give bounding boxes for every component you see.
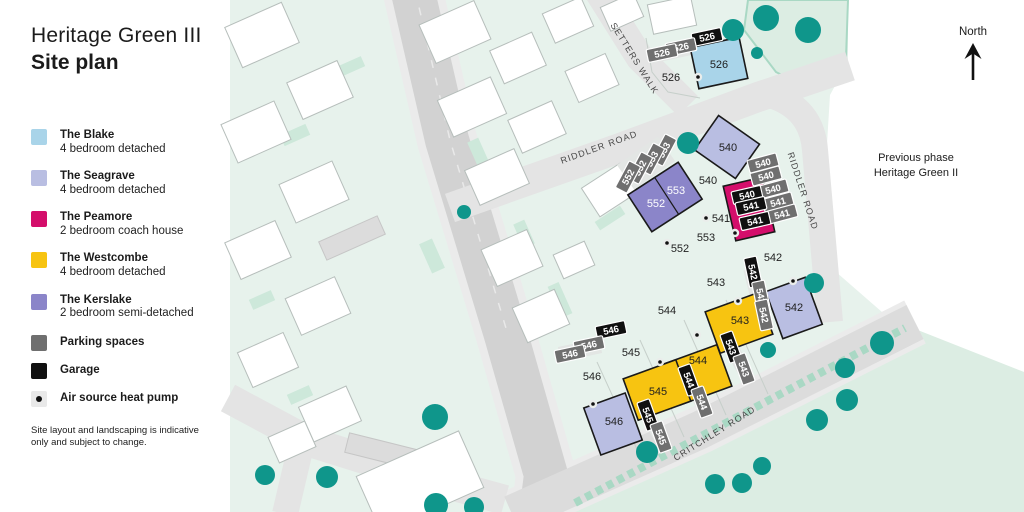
plot-label-543: 543 xyxy=(707,277,725,289)
legend-name: Garage xyxy=(60,364,100,378)
north-arrow-icon xyxy=(959,42,987,82)
heat-pump-marker xyxy=(589,400,597,408)
house-label-546: 546 xyxy=(605,416,623,428)
plot-label-541: 541 xyxy=(712,213,730,225)
plot-label-545: 545 xyxy=(622,347,640,359)
legend-desc: 4 bedroom detached xyxy=(60,143,166,157)
legend-name: The Westcombe xyxy=(60,252,166,266)
parking-color-swatch xyxy=(31,335,47,351)
legend-item-garage: Garage xyxy=(31,363,231,379)
previous-phase-note: Previous phase Heritage Green II xyxy=(836,151,996,181)
plot-label-546: 546 xyxy=(583,371,601,383)
legend-desc: 4 bedroom detached xyxy=(60,266,166,280)
legend-name: Parking spaces xyxy=(60,336,144,350)
tree-icon xyxy=(722,19,744,41)
legend-item-kerslake: The Kerslake 2 bedroom semi-detached xyxy=(31,294,231,321)
heat-pump-marker xyxy=(693,331,701,339)
legend-name: The Blake xyxy=(60,129,166,143)
legend-item-blake: The Blake 4 bedroom detached xyxy=(31,129,231,156)
blake-color-swatch xyxy=(31,129,47,145)
legend-name: The Peamore xyxy=(60,211,183,225)
legend-item-westcombe: The Westcombe 4 bedroom detached xyxy=(31,252,231,279)
tree-icon xyxy=(255,465,275,485)
plot-label-540: 540 xyxy=(699,175,717,187)
tree-icon xyxy=(677,132,699,154)
tree-icon xyxy=(753,457,771,475)
seagrave-color-swatch xyxy=(31,170,47,186)
north-indicator: North xyxy=(945,26,1001,87)
page-title: Heritage Green III xyxy=(31,24,231,48)
legend-item-peamore: The Peamore 2 bedroom coach house xyxy=(31,211,231,238)
legend-item-heat-pump: Air source heat pump xyxy=(31,391,231,407)
house-label-544: 544 xyxy=(689,355,707,367)
legend-desc: 2 bedroom semi-detached xyxy=(60,307,194,321)
legend-name: The Kerslake xyxy=(60,294,194,308)
tree-icon xyxy=(457,205,471,219)
legend: The Blake 4 bedroom detached The Seagrav… xyxy=(31,129,231,407)
tree-icon xyxy=(760,342,776,358)
heat-pump-marker xyxy=(702,214,710,222)
legend-item-parking: Parking spaces xyxy=(31,335,231,351)
north-label: North xyxy=(945,26,1001,38)
house-label-543: 543 xyxy=(731,315,749,327)
site-plan-page: 5265265265535535525525405405405415415405… xyxy=(0,0,1024,512)
tree-icon xyxy=(804,273,824,293)
garage-color-swatch xyxy=(31,363,47,379)
tree-icon xyxy=(795,17,821,43)
plot-label-526: 526 xyxy=(662,72,680,84)
tree-icon xyxy=(753,5,779,31)
previous-phase-line1: Previous phase xyxy=(836,151,996,166)
heat-pump-marker xyxy=(694,73,702,81)
tree-icon xyxy=(636,441,658,463)
house-label-540: 540 xyxy=(719,142,737,154)
legend-name: The Seagrave xyxy=(60,170,166,184)
plot-label-544: 544 xyxy=(658,305,676,317)
heat-pump-marker xyxy=(656,358,664,366)
heat-pump-dot-icon xyxy=(36,396,42,402)
house-label-553: 553 xyxy=(667,185,685,197)
house-label-526: 526 xyxy=(710,59,728,71)
plot-label-553: 553 xyxy=(697,232,715,244)
tree-icon xyxy=(806,409,828,431)
heat-pump-swatch xyxy=(31,391,47,407)
disclaimer-text: Site layout and landscaping is indicativ… xyxy=(31,425,206,450)
page-subtitle: Site plan xyxy=(31,51,231,75)
tree-icon xyxy=(870,331,894,355)
heat-pump-marker xyxy=(734,297,742,305)
legend-desc: 2 bedroom coach house xyxy=(60,225,183,239)
legend-name: Air source heat pump xyxy=(60,392,178,406)
tree-icon xyxy=(705,474,725,494)
tree-icon xyxy=(732,473,752,493)
tree-icon xyxy=(751,47,763,59)
legend-item-seagrave: The Seagrave 4 bedroom detached xyxy=(31,170,231,197)
peamore-color-swatch xyxy=(31,211,47,227)
info-panel: Heritage Green III Site plan The Blake 4… xyxy=(31,24,231,449)
plot-label-552: 552 xyxy=(671,243,689,255)
tree-icon xyxy=(836,389,858,411)
heat-pump-marker xyxy=(789,277,797,285)
plot-label-542: 542 xyxy=(764,252,782,264)
tree-icon xyxy=(422,404,448,430)
house-label-542: 542 xyxy=(785,302,803,314)
previous-phase-line2: Heritage Green II xyxy=(836,166,996,181)
heat-pump-marker xyxy=(731,229,739,237)
house-label-545: 545 xyxy=(649,386,667,398)
house-label-552: 552 xyxy=(647,198,665,210)
kerslake-color-swatch xyxy=(31,294,47,310)
westcombe-color-swatch xyxy=(31,252,47,268)
legend-desc: 4 bedroom detached xyxy=(60,184,166,198)
tree-icon xyxy=(316,466,338,488)
tree-icon xyxy=(835,358,855,378)
